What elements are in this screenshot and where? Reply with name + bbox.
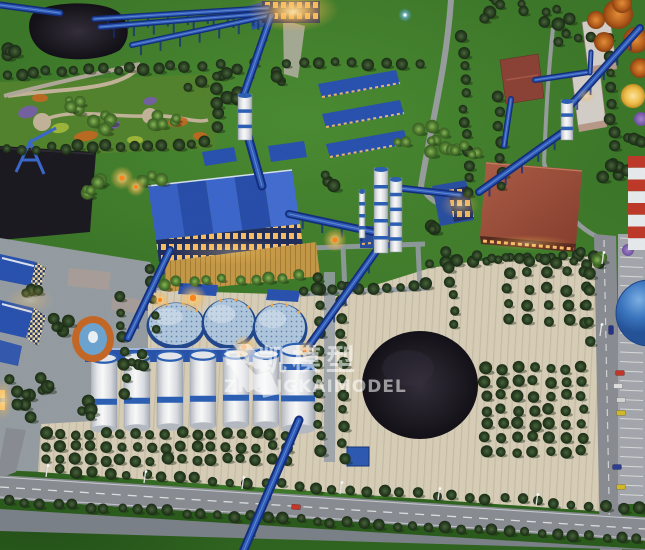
model-photo: 中凯模型 ZHONGKAIMODEL [0,0,645,550]
photo-grain [0,0,645,550]
scene-svg [0,0,645,550]
